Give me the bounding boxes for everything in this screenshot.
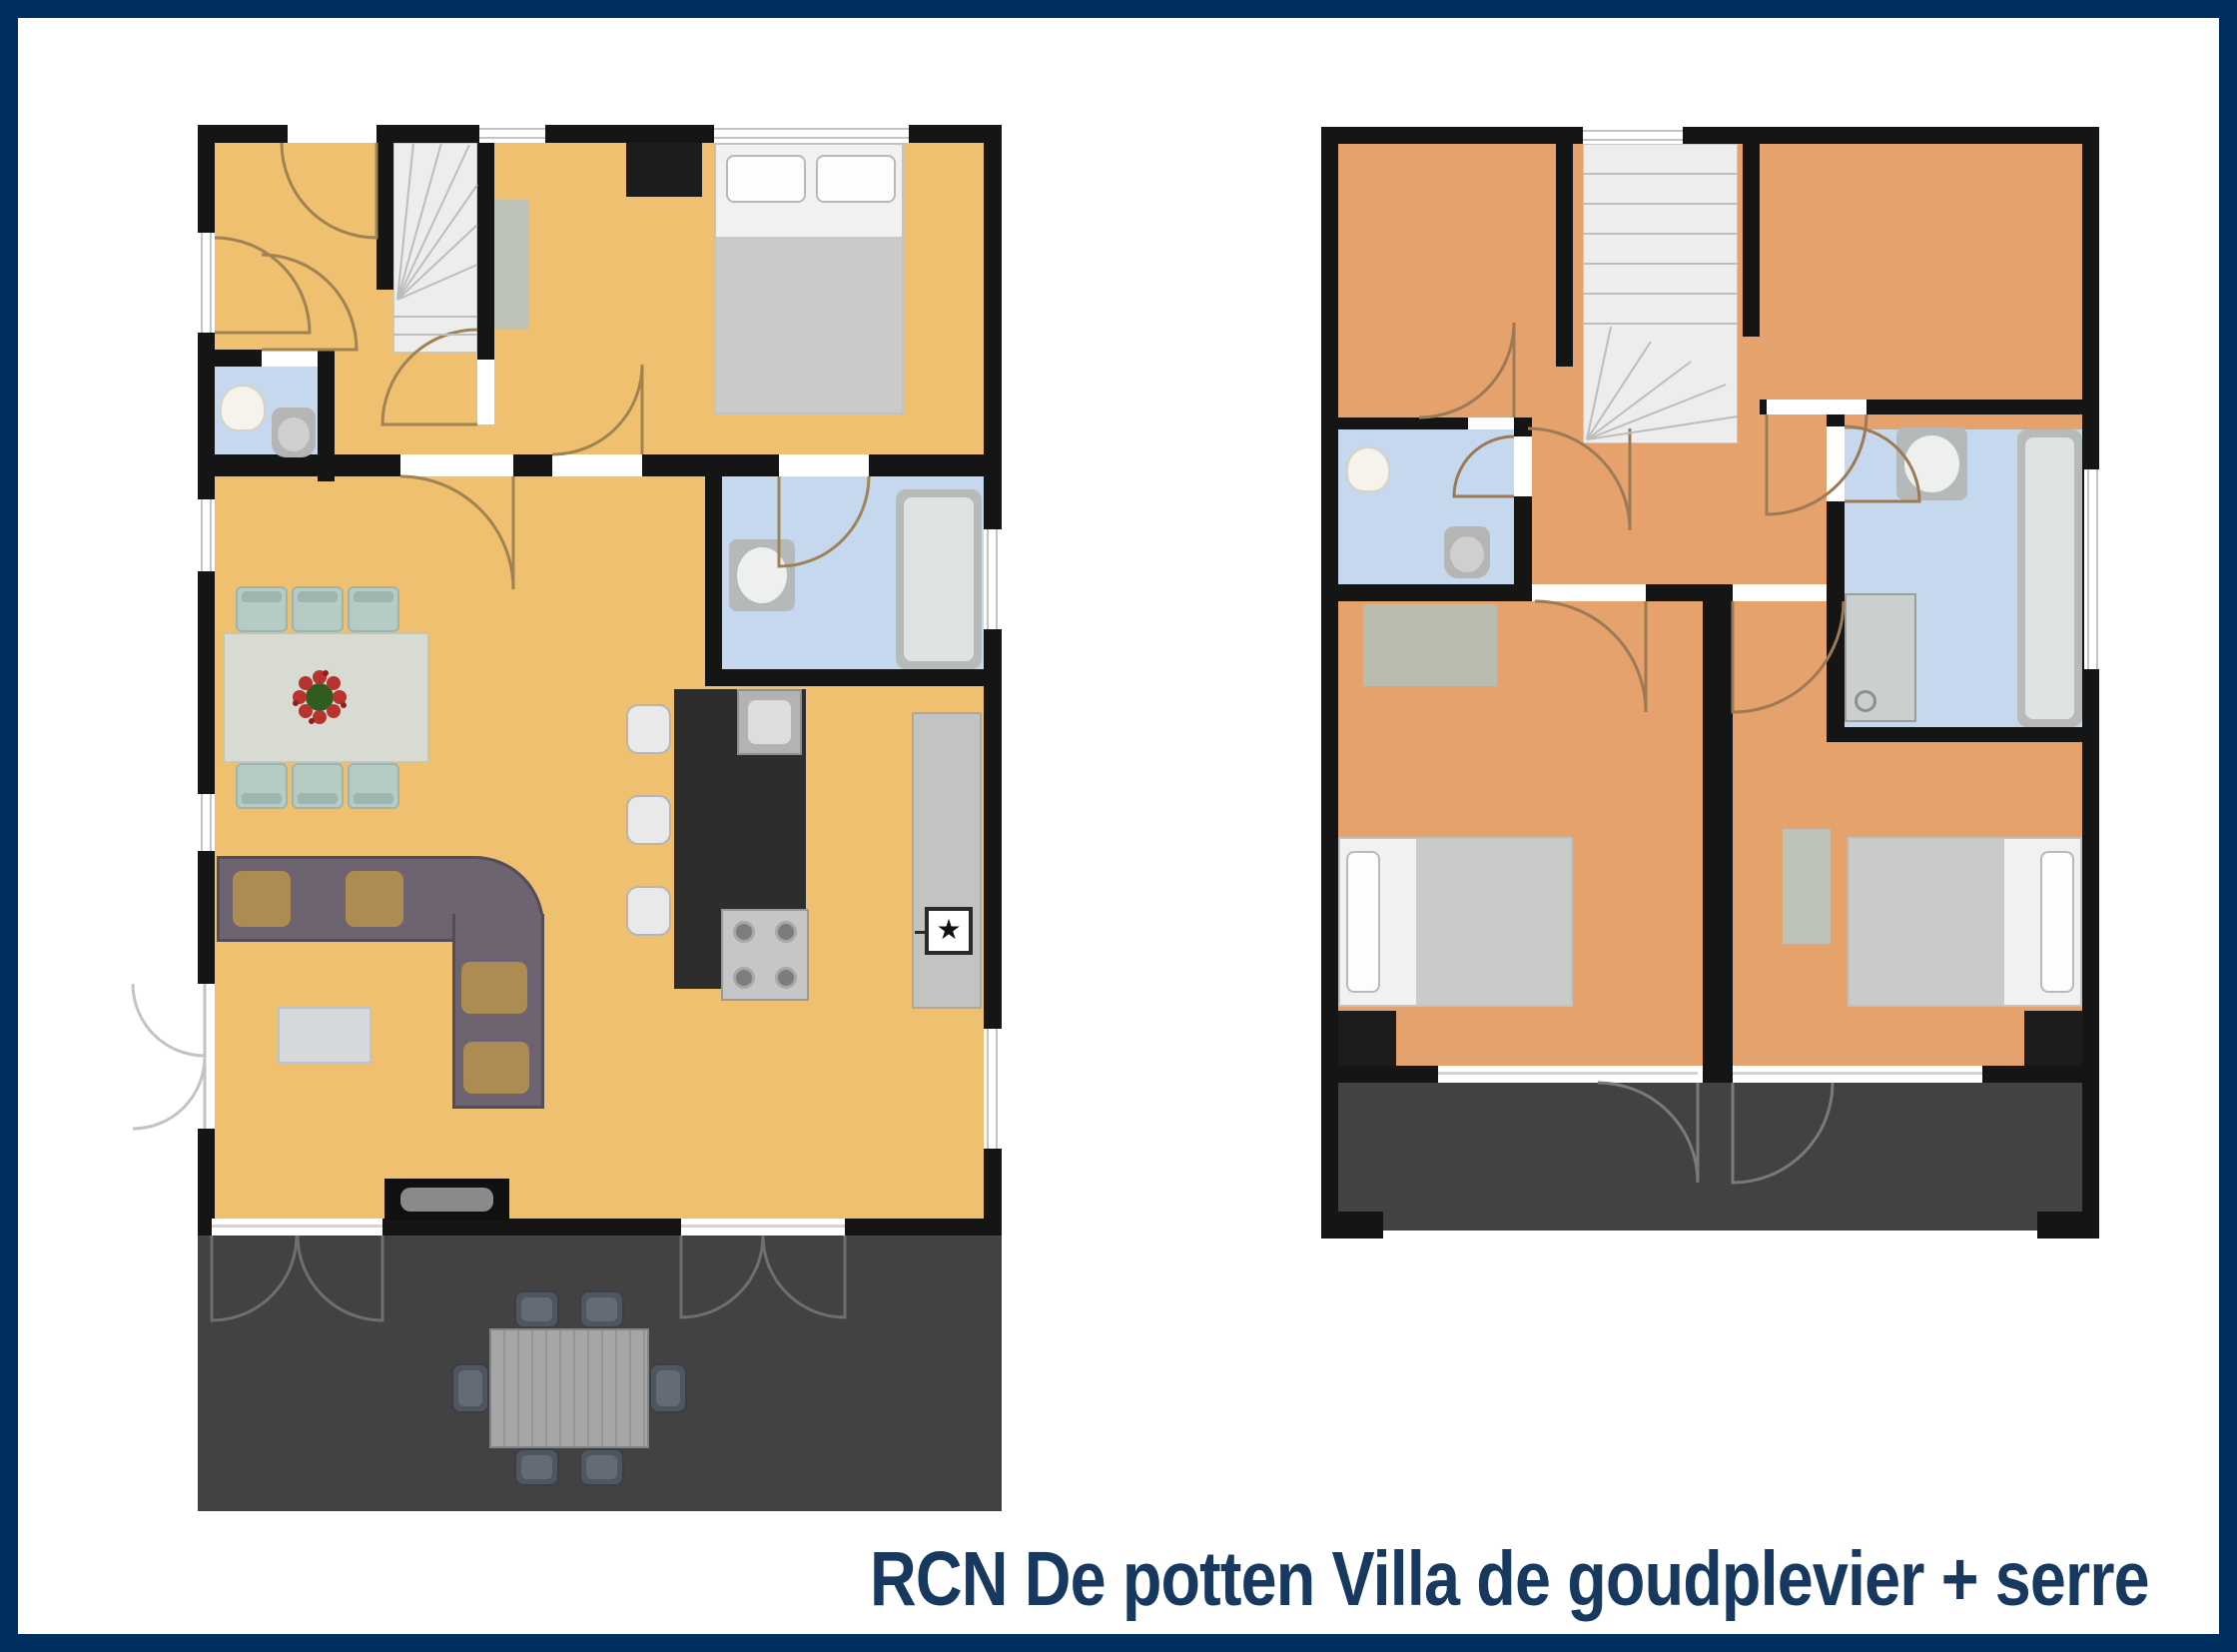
balcony-door-arcs <box>1598 1083 1833 1183</box>
door-swing-arcs <box>1419 323 1919 712</box>
ground-floor-plan: ★ <box>198 125 1002 1511</box>
first-floor-annotations <box>1321 127 2099 1239</box>
flower-bouquet <box>293 670 347 724</box>
ground-floor-annotations <box>198 125 1002 1511</box>
first-floor-plan <box>1321 127 2099 1239</box>
floorplan-page: ★ <box>0 0 2237 1652</box>
exterior-french-door-arcs <box>118 974 213 1144</box>
door-swing-arcs <box>215 143 869 589</box>
stair-treads <box>393 143 477 335</box>
caption: RCN De potten Villa de goudplevier + ser… <box>870 1535 2149 1624</box>
terrace-door-arcs <box>212 1236 845 1320</box>
stair-treads <box>1583 174 1738 439</box>
